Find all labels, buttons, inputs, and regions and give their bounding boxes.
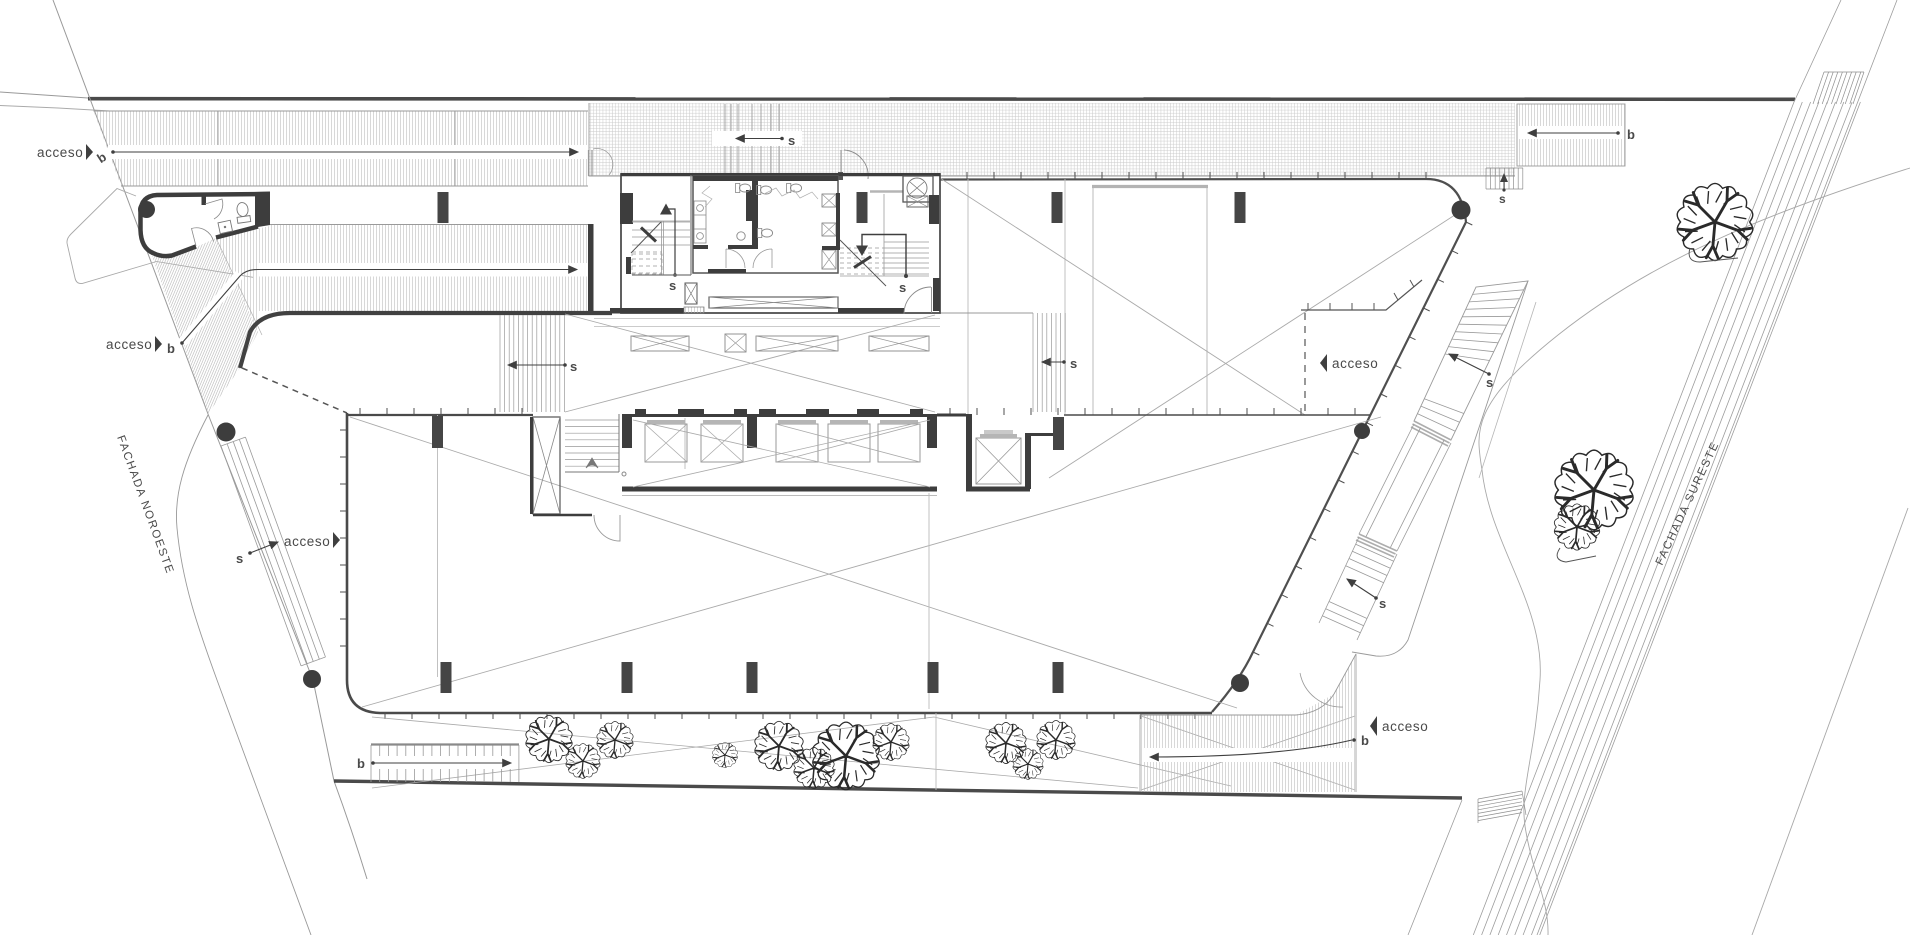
svg-text:b: b — [167, 341, 175, 356]
svg-text:s: s — [1499, 192, 1506, 206]
svg-text:s: s — [669, 278, 676, 293]
svg-text:acceso: acceso — [284, 534, 330, 549]
svg-text:s: s — [236, 551, 243, 566]
svg-text:acceso: acceso — [1332, 356, 1378, 371]
svg-text:acceso: acceso — [106, 337, 152, 352]
svg-text:acceso: acceso — [37, 145, 83, 160]
svg-text:s: s — [1486, 375, 1493, 390]
svg-text:s: s — [1070, 356, 1077, 371]
svg-text:b: b — [1361, 733, 1369, 748]
svg-text:s: s — [1379, 596, 1386, 611]
svg-text:b: b — [1627, 127, 1635, 142]
svg-text:s: s — [570, 359, 577, 374]
svg-text:acceso: acceso — [1382, 719, 1428, 734]
svg-text:s: s — [788, 133, 795, 148]
svg-text:s: s — [899, 280, 906, 295]
svg-text:b: b — [357, 756, 365, 771]
